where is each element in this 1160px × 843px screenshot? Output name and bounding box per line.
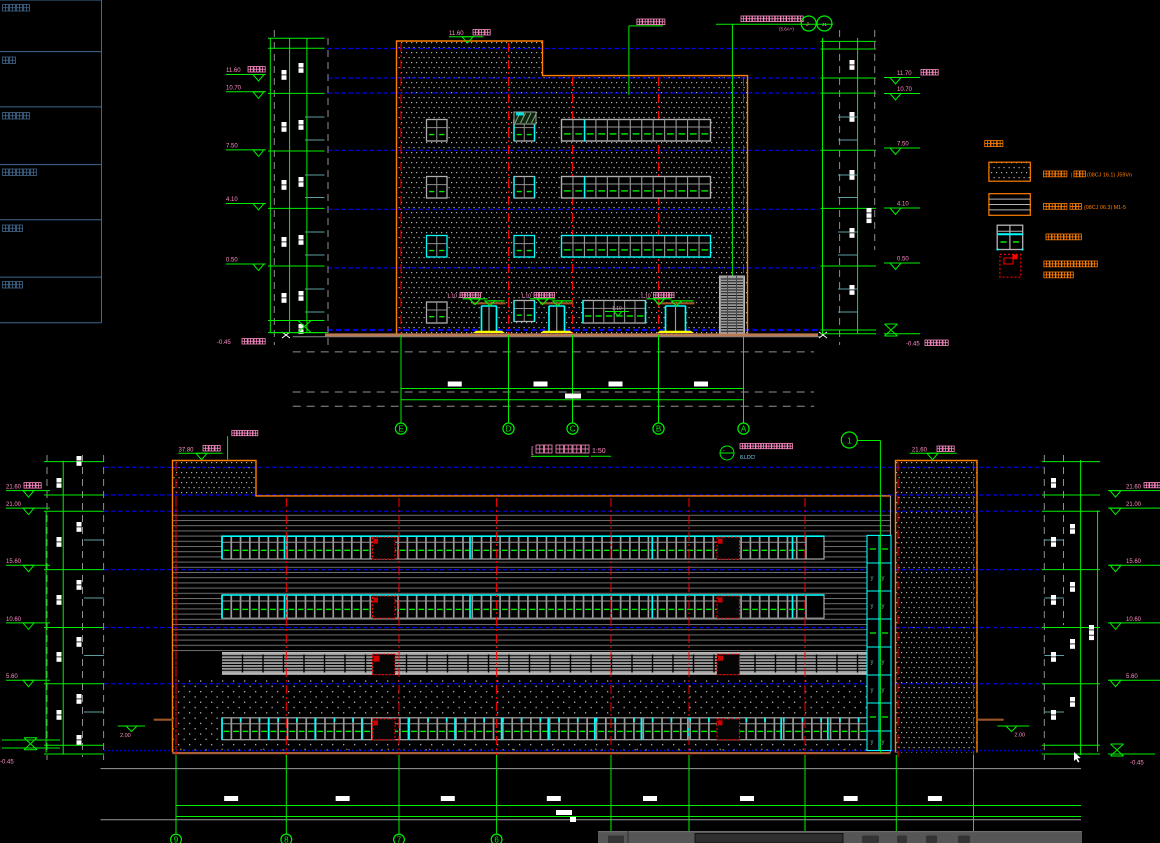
svg-text:1: 1 [847,437,852,446]
svg-text:C: C [570,425,576,434]
svg-text:15.60: 15.60 [1126,559,1142,565]
svg-text:E: E [398,425,403,434]
svg-text:y: y [871,576,874,582]
svg-text:21.00: 21.00 [1126,502,1142,508]
svg-text:J1: J1 [822,22,827,27]
svg-text:10.70: 10.70 [897,87,913,93]
svg-text:10.60: 10.60 [6,617,22,623]
svg-text:11.60: 11.60 [449,31,464,37]
svg-text:A: A [741,425,747,434]
svg-text:y: y [882,688,885,694]
svg-text:10.70: 10.70 [226,85,242,91]
svg-text:11.70: 11.70 [897,71,912,77]
svg-text:1.10: 1.10 [641,294,651,300]
svg-text:1.10: 1.10 [612,306,622,312]
svg-text:(5.6A+): (5.6A+) [779,27,794,32]
svg-text:-0.45: -0.45 [906,342,920,348]
svg-text:11.60: 11.60 [226,68,241,74]
svg-text:y: y [871,740,874,746]
svg-text:7.50: 7.50 [897,142,909,148]
svg-text:8: 8 [284,836,289,843]
svg-text:37.80: 37.80 [179,448,195,454]
svg-text:8.LDC!: 8.LDC! [740,455,756,461]
svg-text:y: y [871,660,874,666]
svg-text:y: y [882,660,885,666]
svg-text:5.60: 5.60 [6,674,18,680]
svg-text:y: y [882,576,885,582]
svg-text:1.10: 1.10 [521,294,531,300]
svg-text:21.00: 21.00 [6,502,22,508]
svg-text:1:50: 1:50 [592,448,606,455]
svg-text:(08CJ 06.3) M1-5: (08CJ 06.3) M1-5 [1084,205,1126,211]
svg-text:15.60: 15.60 [6,559,22,565]
svg-text:-0.45: -0.45 [217,340,231,346]
svg-text:y: y [882,604,885,610]
svg-text:2.00: 2.00 [120,733,131,739]
svg-text:D: D [506,425,512,434]
svg-text:0.50: 0.50 [897,257,909,263]
svg-text:5.60: 5.60 [1126,674,1138,680]
svg-text:1.10: 1.10 [447,294,457,300]
svg-text:10.60: 10.60 [1126,617,1142,623]
svg-text:7.50: 7.50 [226,143,238,149]
svg-text:6: 6 [494,836,499,843]
svg-text:7: 7 [397,836,402,843]
svg-text:y: y [871,604,874,610]
svg-text:(08CJ 16.1) J59Vn: (08CJ 16.1) J59Vn [1087,173,1132,179]
svg-text:|: | [1071,173,1072,179]
svg-text:J: J [806,22,809,28]
svg-text:y: y [871,688,874,694]
svg-text:21.60: 21.60 [1126,485,1142,491]
svg-text:2.00: 2.00 [1014,733,1025,739]
svg-text:-0.45: -0.45 [1130,761,1144,767]
svg-text:9: 9 [174,836,179,843]
svg-text:-0.45: -0.45 [0,760,14,766]
svg-text:4.10: 4.10 [897,202,909,208]
svg-text:y: y [882,740,885,746]
svg-text:21.60: 21.60 [912,448,928,454]
svg-text:4.10: 4.10 [226,197,238,203]
svg-text:0.50: 0.50 [226,258,238,264]
svg-text:B: B [656,425,661,434]
svg-text:21.60: 21.60 [6,485,22,491]
